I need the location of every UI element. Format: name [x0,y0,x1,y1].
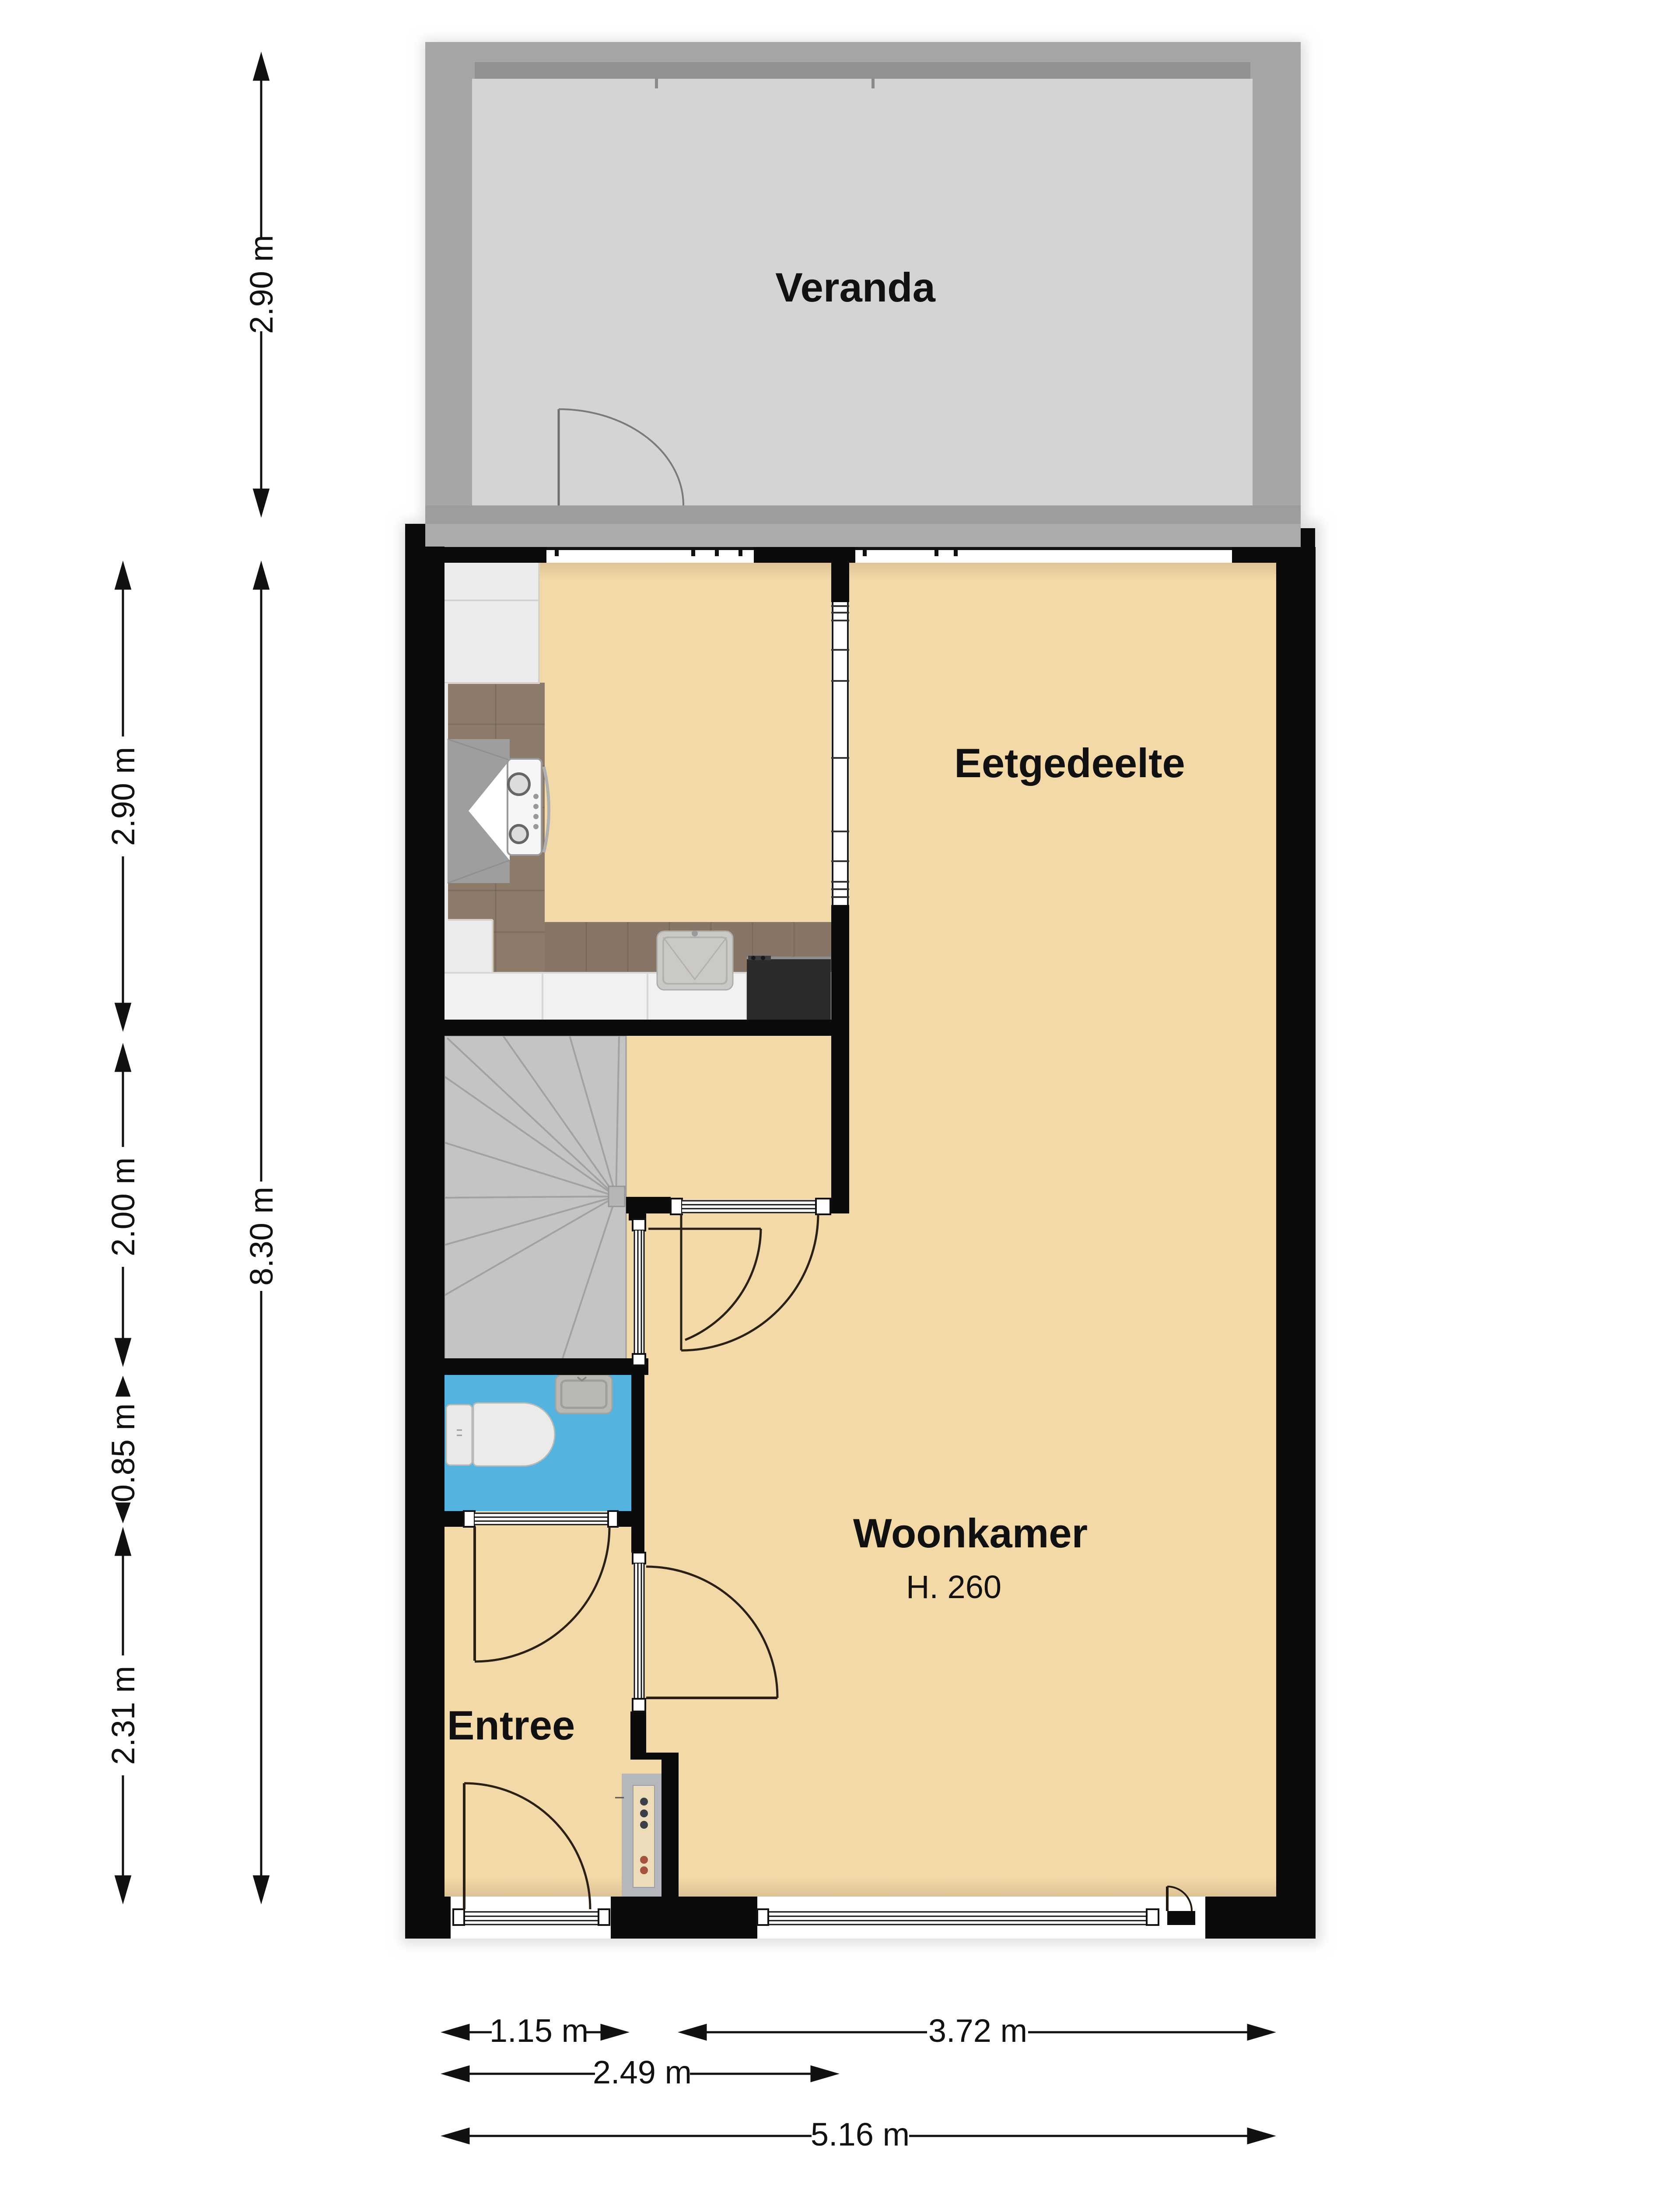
svg-text:2.00 m: 2.00 m [105,1157,141,1256]
svg-text:H. 260: H. 260 [906,1569,1001,1605]
svg-text:1.15 m: 1.15 m [490,2013,588,2049]
svg-text:Woonkamer: Woonkamer [853,1510,1088,1556]
svg-text:2.90 m: 2.90 m [243,235,280,334]
svg-text:Entree: Entree [447,1702,575,1748]
svg-text:2.31 m: 2.31 m [105,1666,141,1765]
svg-text:2.49 m: 2.49 m [593,2054,692,2090]
svg-text:5.16 m: 5.16 m [811,2116,910,2153]
svg-text:Veranda: Veranda [775,264,935,310]
svg-text:0.85 m: 0.85 m [105,1403,141,1502]
svg-text:Eetgedeelte: Eetgedeelte [954,740,1185,786]
svg-text:8.30 m: 8.30 m [243,1187,280,1286]
svg-text:3.72 m: 3.72 m [928,2013,1027,2049]
svg-text:2.90 m: 2.90 m [105,747,141,846]
